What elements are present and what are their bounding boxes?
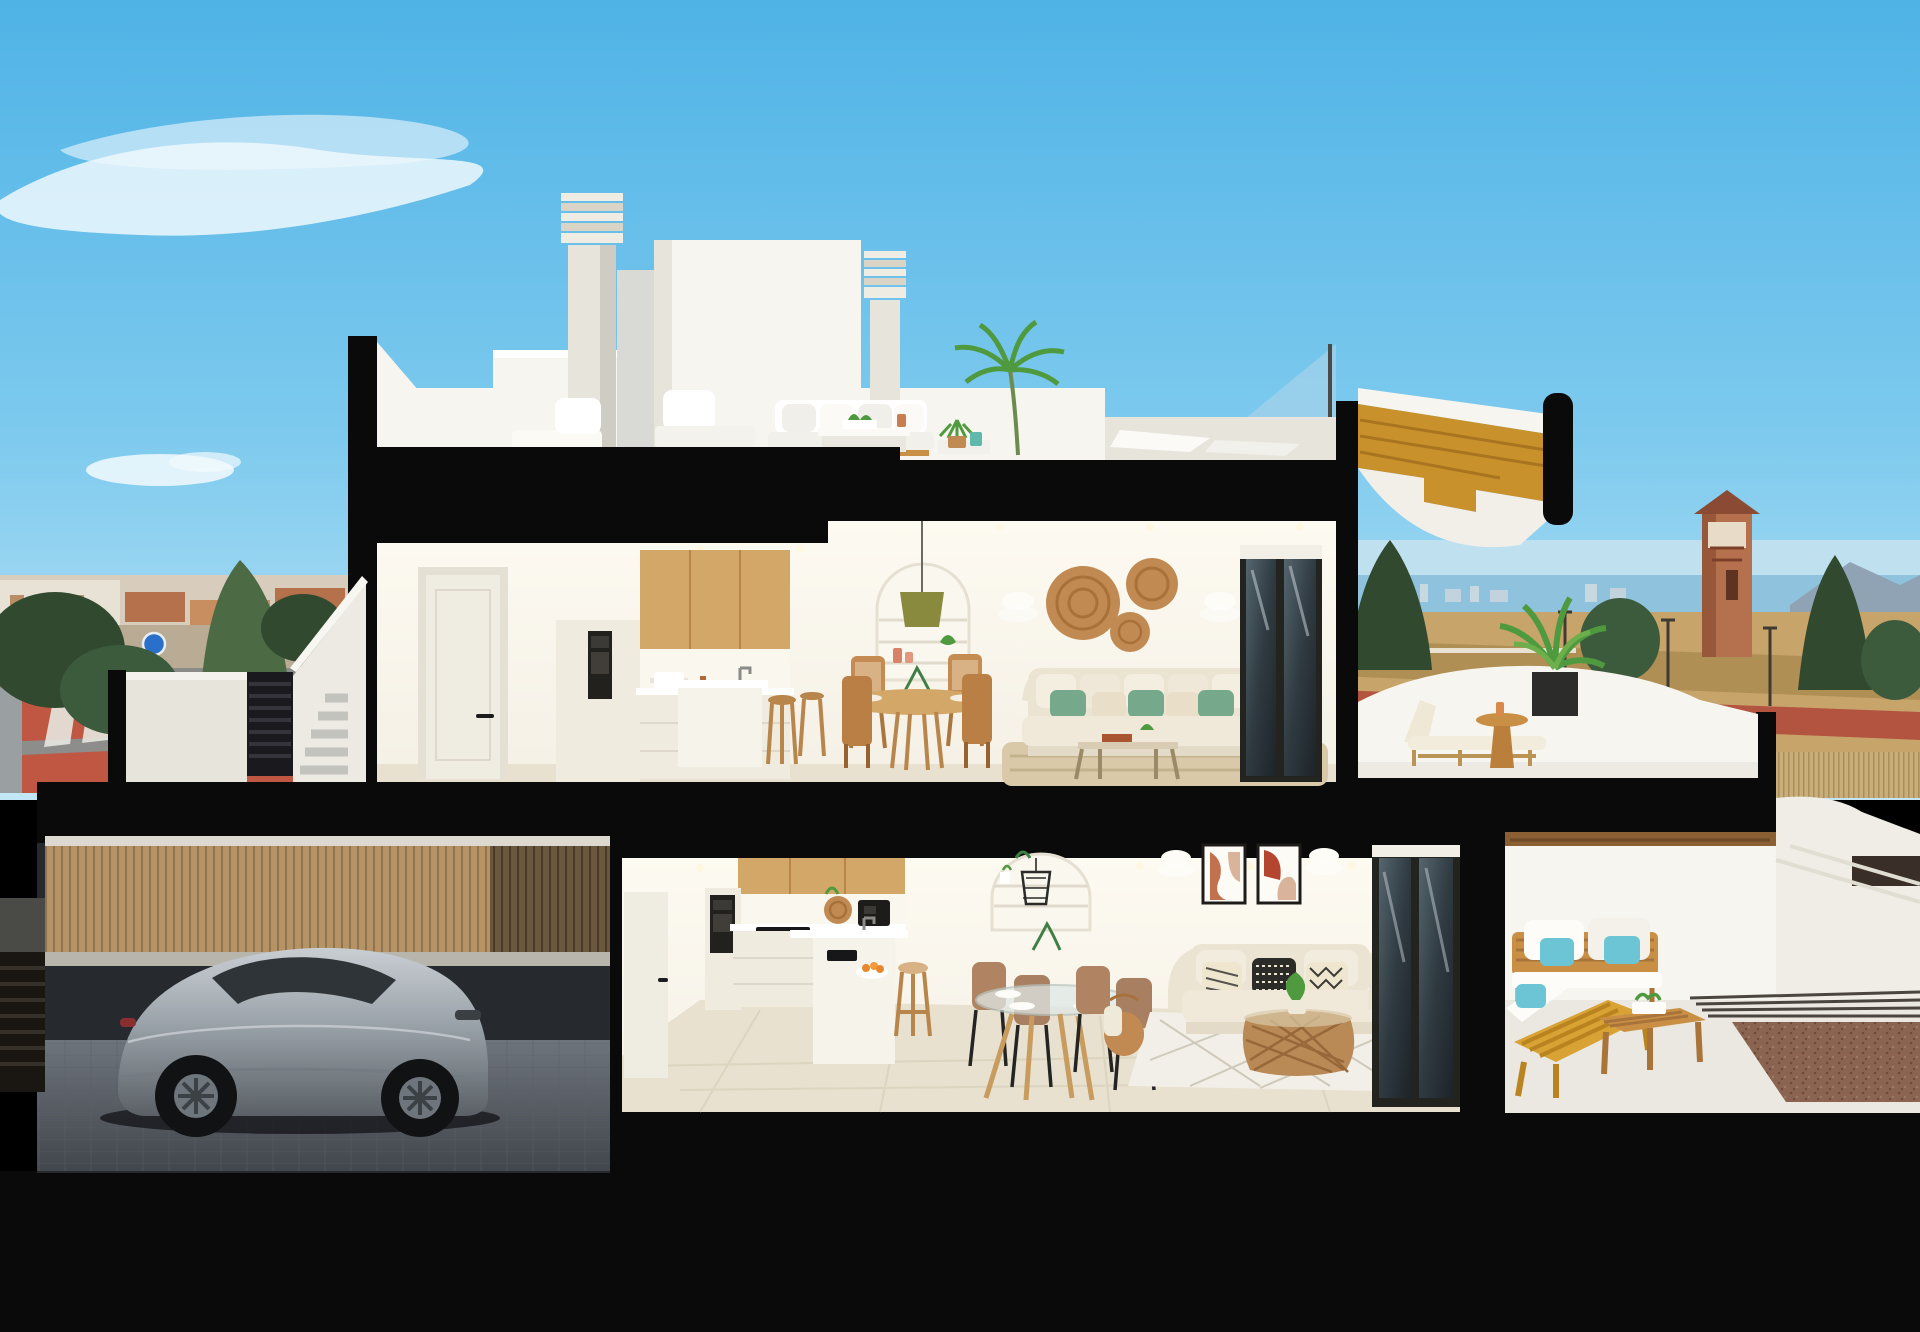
green-cushion [1128,690,1164,718]
oak-upper-cabinets [738,858,905,894]
lower-terrace [1505,797,1920,1113]
coral-vase [893,648,902,663]
hall-door-lower [624,892,668,1078]
lower-sliding-doors [1372,845,1460,1107]
wicker-decor [824,896,852,924]
cup [1496,702,1504,716]
cross-section-illustration [0,0,1920,1332]
court-wall [126,672,247,782]
cut-terrace-edge [1756,712,1776,833]
reed-fence [1776,752,1920,798]
kitchen-island [672,668,768,767]
green-cushion [1050,690,1086,718]
terrace-floor [1358,762,1758,778]
table-books [1102,734,1132,742]
door-handle [658,978,668,982]
canopy-end-cap [1543,393,1573,525]
oak-upper-cabinets [640,550,790,649]
teal-pillow [1604,936,1640,964]
small-vase [897,414,906,427]
teal-pillow [1540,938,1574,966]
teal-pot [970,432,982,446]
throw-blanket [1104,1006,1122,1036]
lower-floor-interior [622,845,1460,1112]
timber-slat-fence-shaded [490,846,610,956]
garage-level [0,836,610,1173]
upper-floor-interior [377,521,1336,786]
green-cushion [1198,690,1234,718]
door-handle [476,714,494,718]
patterned-cushions [1202,958,1348,994]
watch-tower [1694,490,1760,657]
chimney-louvers [561,193,623,243]
roof-armchair [663,390,715,430]
car-headlight [455,1010,481,1020]
car-wheel-front [381,1059,459,1137]
car-taillight [120,1018,136,1027]
cut-right-wall-upper [1336,401,1358,782]
timber-slat-fence [45,846,490,956]
cut-right-wall-lower [1460,843,1505,1115]
cut-entry-frame [108,670,126,844]
corrugated-kiosk [0,688,22,793]
olive-pendant-lamp [900,592,944,627]
roller-blind-box [1240,545,1322,559]
cut-garage-divider [610,843,622,1113]
car-wheel-rear [155,1055,237,1137]
louver-gate [247,672,293,776]
teal-pillow [1516,984,1546,1008]
interior-door [418,567,508,779]
island-sink [827,950,857,961]
dark-slat-panel [0,898,45,1092]
upper-sliding-door [1240,545,1322,782]
render-canvas [0,0,1920,1332]
